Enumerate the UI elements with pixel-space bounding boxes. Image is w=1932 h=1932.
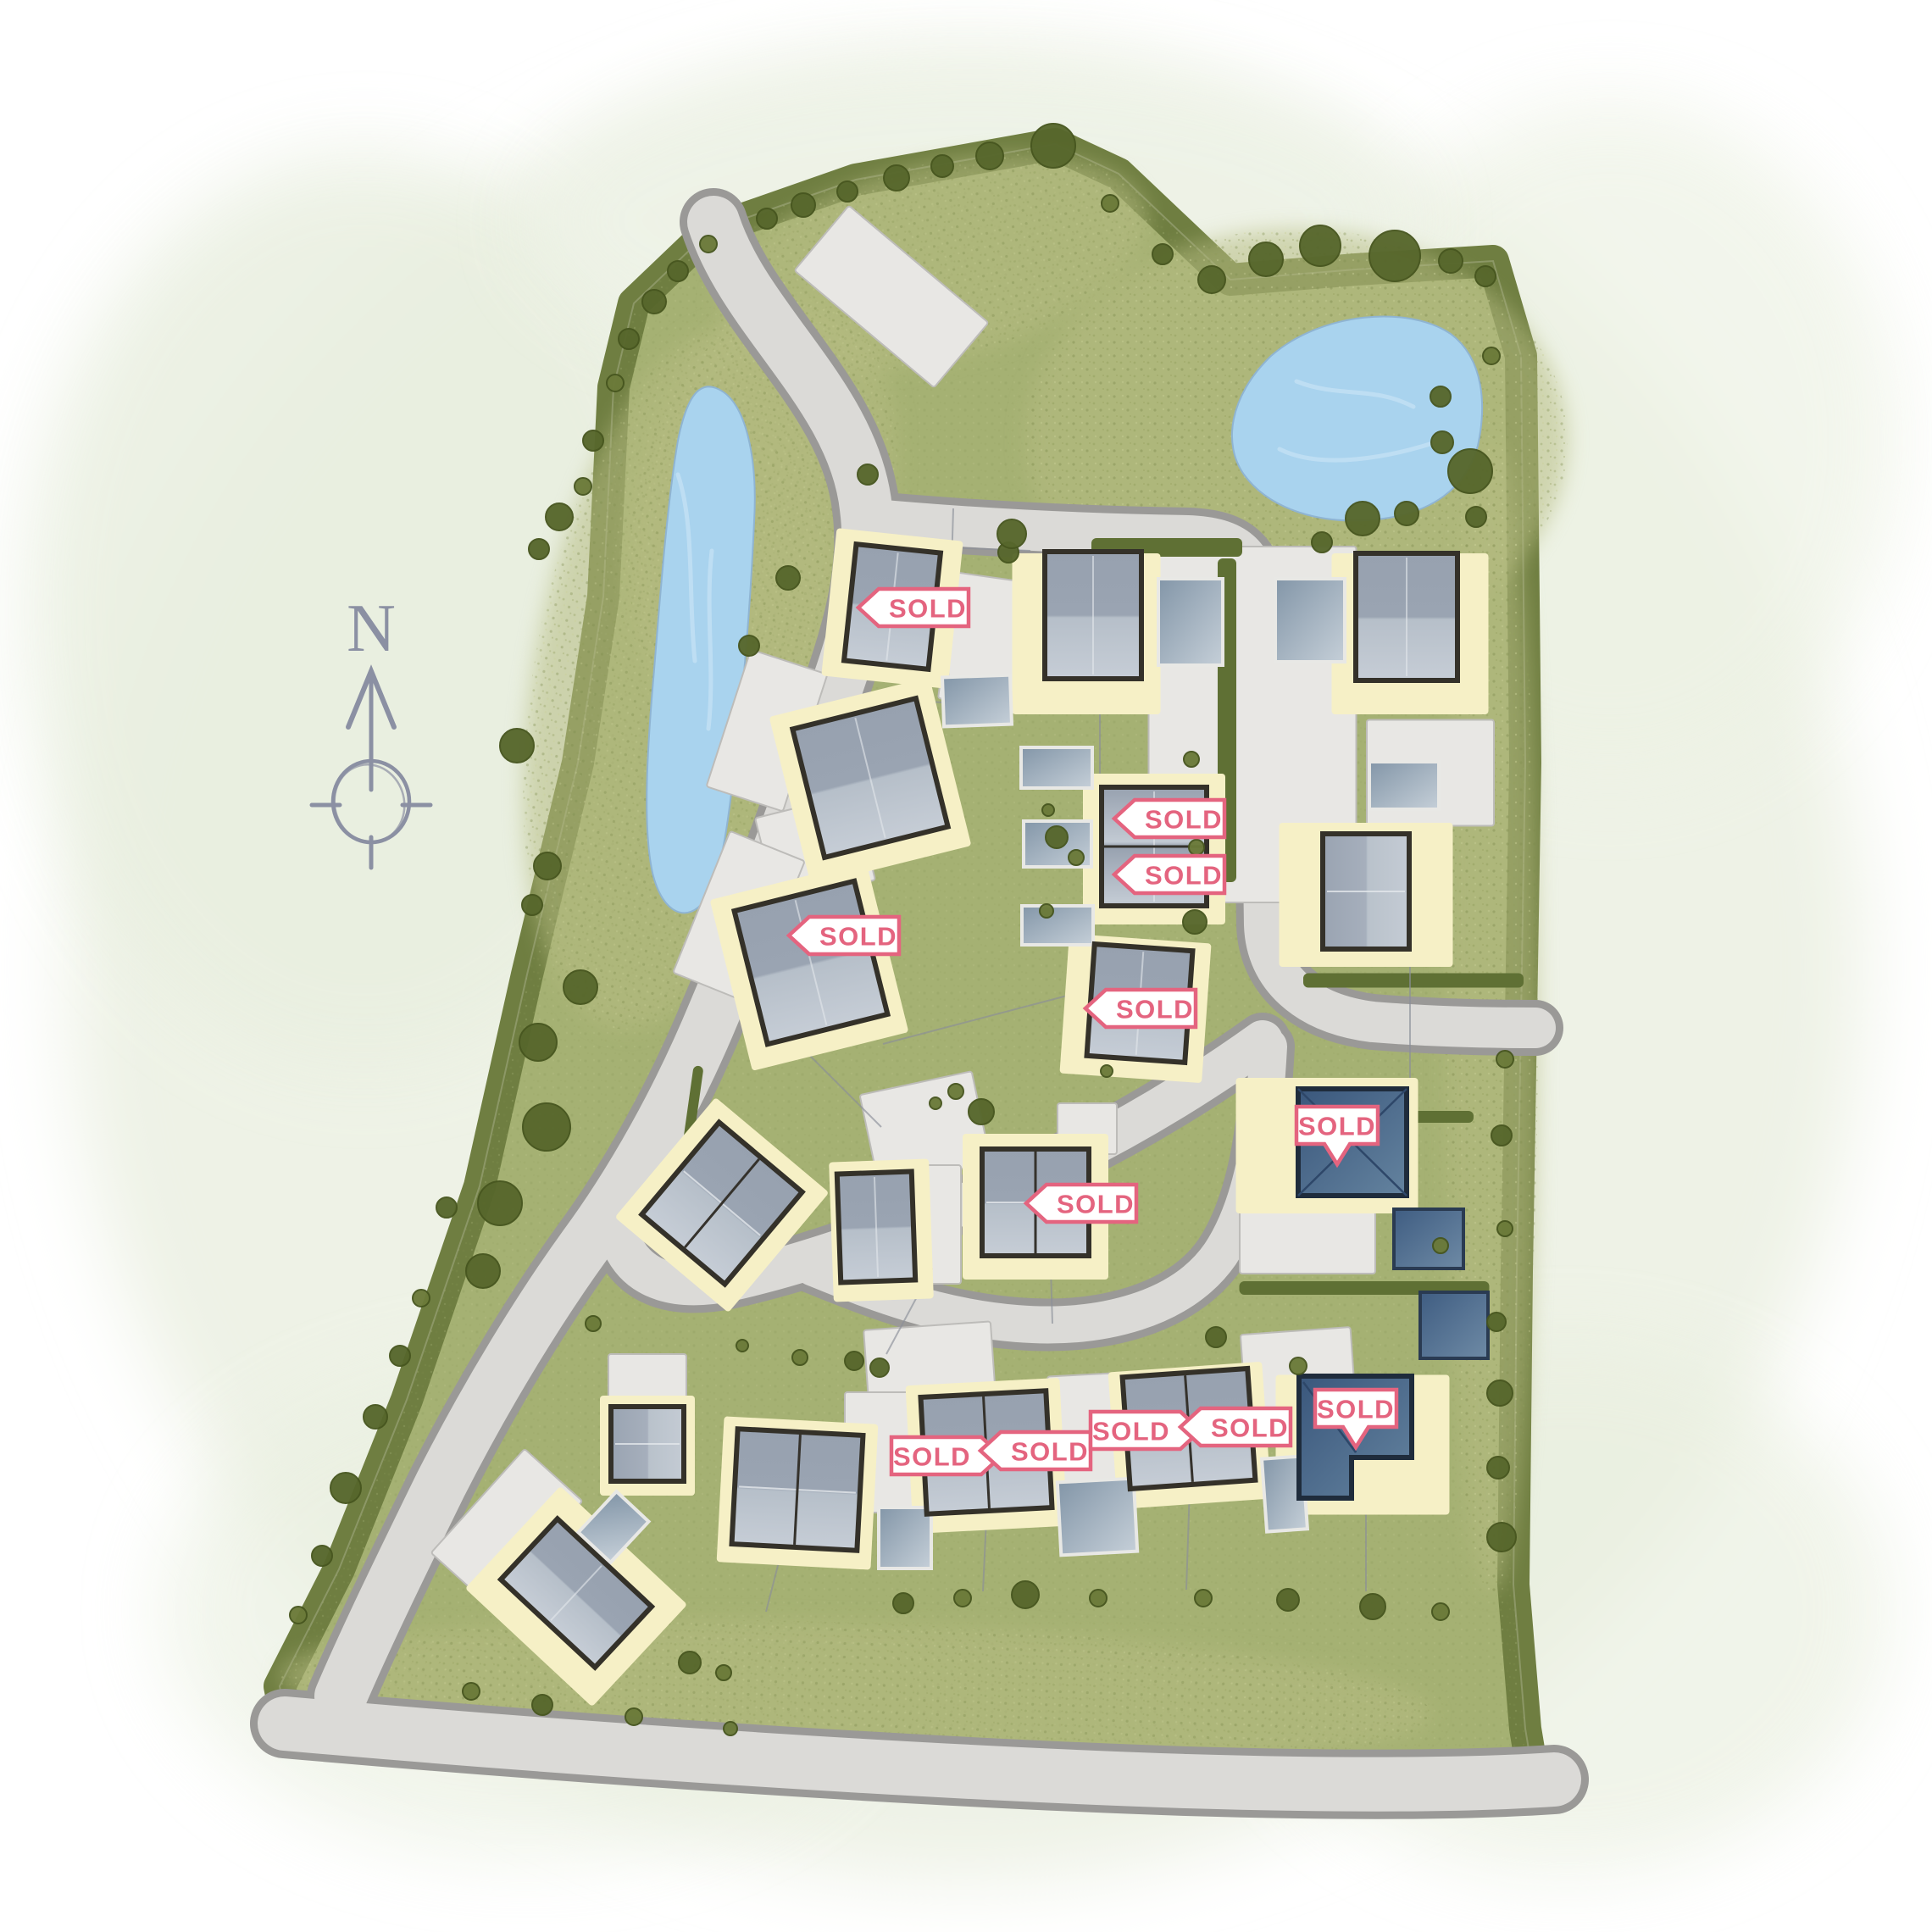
driveway <box>1240 1207 1375 1274</box>
tree <box>413 1290 430 1307</box>
tree <box>1432 1603 1449 1620</box>
sold-badge-label: SOLD <box>1145 805 1223 835</box>
sold-badge[interactable]: SOLD <box>1085 990 1196 1027</box>
house[interactable] <box>611 1407 684 1481</box>
tree <box>837 181 858 202</box>
tree <box>845 1352 863 1370</box>
sold-badge[interactable]: SOLD <box>1114 800 1224 837</box>
tree <box>1430 386 1451 407</box>
sold-badge-label: SOLD <box>1145 861 1223 891</box>
sold-badge-label: SOLD <box>1298 1112 1376 1141</box>
tree <box>575 478 591 495</box>
garage-roof <box>1022 906 1093 945</box>
tree <box>500 729 534 763</box>
tree <box>523 1103 570 1151</box>
tree <box>1491 1125 1512 1146</box>
tree <box>776 566 800 590</box>
tree <box>1487 1523 1516 1552</box>
tree <box>948 1084 963 1099</box>
tree <box>1497 1221 1513 1236</box>
tree <box>1031 124 1075 168</box>
tree <box>534 852 561 880</box>
house[interactable] <box>1356 553 1457 680</box>
tree <box>312 1546 332 1566</box>
tree <box>1439 249 1463 273</box>
garage[interactable] <box>879 1507 931 1568</box>
sold-badge-label: SOLD <box>889 594 967 624</box>
garage[interactable] <box>1394 1209 1463 1269</box>
tree <box>1102 195 1119 212</box>
garage[interactable] <box>1022 906 1093 945</box>
tree <box>390 1346 410 1366</box>
tree <box>679 1652 701 1674</box>
tree <box>1475 266 1496 286</box>
site-plan: SOLDSOLDSOLDSOLDSOLDSOLDSOLDSOLDSOLDSOLD… <box>0 0 1932 1932</box>
tree <box>1069 850 1084 865</box>
garage[interactable] <box>1158 579 1223 665</box>
tree <box>716 1665 731 1680</box>
tree <box>1496 1051 1513 1068</box>
tree <box>931 155 953 177</box>
tree <box>1300 225 1341 266</box>
garage[interactable] <box>1275 579 1345 662</box>
tree <box>870 1358 889 1377</box>
tree <box>290 1607 307 1624</box>
tree <box>1206 1327 1226 1347</box>
garage-roof <box>1058 1479 1137 1556</box>
house[interactable] <box>837 1172 915 1283</box>
tree <box>1487 1457 1509 1479</box>
tree <box>1046 826 1068 848</box>
tree <box>478 1181 522 1225</box>
sold-badge-label: SOLD <box>1211 1413 1289 1443</box>
tree <box>969 1099 994 1124</box>
garage-roof <box>1420 1292 1488 1358</box>
tree <box>522 895 542 915</box>
garage[interactable] <box>1058 1479 1137 1556</box>
house[interactable] <box>1323 834 1409 949</box>
tree <box>563 970 597 1004</box>
tree <box>1012 1581 1039 1608</box>
garage-roof <box>879 1507 931 1568</box>
tree <box>724 1722 737 1735</box>
tree <box>736 1340 748 1352</box>
tree <box>1360 1594 1385 1619</box>
sold-badge-label: SOLD <box>1317 1395 1395 1424</box>
tree <box>436 1197 457 1218</box>
tree <box>930 1097 941 1109</box>
sold-badge-label: SOLD <box>1092 1417 1170 1446</box>
tree <box>583 430 603 451</box>
tree <box>463 1683 480 1700</box>
tree <box>466 1254 500 1288</box>
garage-roof <box>1158 579 1223 665</box>
tree <box>1277 1589 1299 1611</box>
sold-badge[interactable]: SOLD <box>980 1432 1091 1469</box>
tree <box>1290 1357 1307 1374</box>
tree <box>364 1405 387 1429</box>
tree <box>976 142 1003 169</box>
tree <box>619 329 639 349</box>
tree <box>1466 507 1486 527</box>
tree <box>1040 904 1053 918</box>
garage[interactable] <box>942 675 1012 727</box>
tree <box>625 1708 642 1725</box>
tree <box>529 539 549 559</box>
tree <box>330 1473 361 1503</box>
garage-roof <box>1369 762 1439 809</box>
sold-badge[interactable]: SOLD <box>1180 1408 1291 1446</box>
sold-badge-label: SOLD <box>1116 995 1194 1024</box>
tree <box>668 261 688 281</box>
tree <box>1183 910 1207 934</box>
tree <box>739 636 759 656</box>
tree <box>1198 266 1225 293</box>
tree <box>1195 1590 1212 1607</box>
tree <box>997 519 1026 548</box>
tree <box>1431 431 1453 453</box>
tree <box>1395 502 1418 525</box>
tree <box>954 1590 971 1607</box>
tree <box>1369 230 1420 281</box>
sold-badge-label: SOLD <box>1057 1190 1135 1219</box>
tree <box>1433 1238 1448 1253</box>
tree <box>1101 1065 1113 1077</box>
hedge-strip <box>1303 974 1524 988</box>
sold-badge-label: SOLD <box>893 1442 971 1472</box>
tree <box>519 1024 557 1061</box>
tree <box>700 236 717 253</box>
sold-badge[interactable]: SOLD <box>1114 856 1224 893</box>
garage[interactable] <box>1420 1292 1488 1358</box>
tree <box>586 1316 601 1331</box>
tree <box>642 290 666 314</box>
tree <box>1189 840 1204 855</box>
tree <box>858 464 878 485</box>
sold-badge-label: SOLD <box>1011 1437 1089 1467</box>
tree <box>1483 347 1500 364</box>
tree <box>1487 1313 1506 1331</box>
garage-roof <box>1394 1209 1463 1269</box>
tree <box>1042 804 1054 816</box>
tree <box>1249 242 1283 276</box>
garage-roof <box>1021 747 1092 788</box>
tree <box>546 503 573 530</box>
tree <box>1448 449 1492 493</box>
garage[interactable] <box>1369 762 1439 809</box>
garage[interactable] <box>1021 747 1092 788</box>
tree <box>893 1593 913 1613</box>
tree <box>791 193 815 217</box>
tree <box>1090 1590 1107 1607</box>
sold-badge[interactable]: SOLD <box>1026 1185 1136 1222</box>
compass-north-label: N <box>347 591 396 666</box>
tree <box>532 1695 552 1715</box>
tree <box>1487 1380 1513 1406</box>
tree <box>1346 502 1380 536</box>
tree <box>1152 244 1173 264</box>
tree <box>607 375 624 391</box>
sold-badge-label: SOLD <box>819 922 897 952</box>
sold-badge[interactable]: SOLD <box>789 917 899 954</box>
garage-roof <box>1275 579 1345 662</box>
tree <box>1312 532 1332 552</box>
house[interactable] <box>1045 552 1141 679</box>
tree <box>757 208 777 229</box>
sold-badge[interactable]: SOLD <box>858 589 969 626</box>
tree <box>1184 752 1199 767</box>
tree <box>884 165 909 191</box>
tree <box>792 1350 808 1365</box>
house[interactable] <box>732 1429 863 1551</box>
garage-roof <box>942 675 1012 727</box>
